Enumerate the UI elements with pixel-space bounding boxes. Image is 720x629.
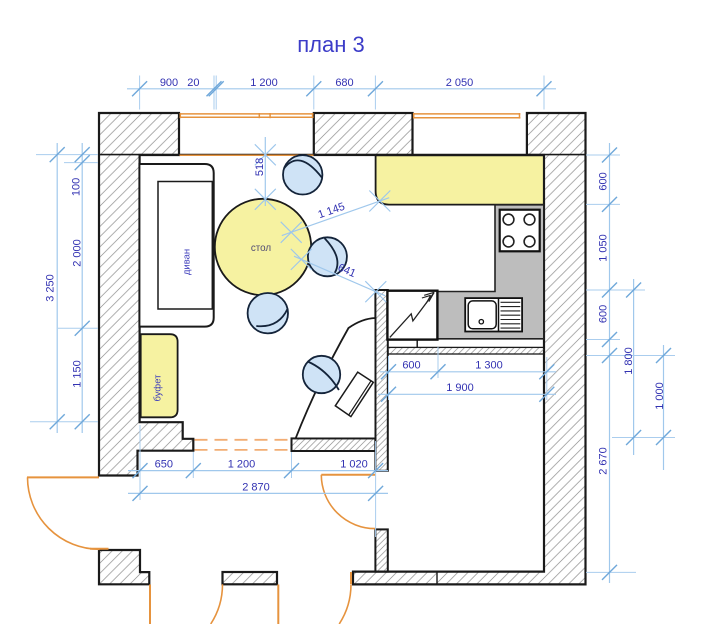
svg-text:600: 600 (402, 360, 420, 372)
svg-text:1 000: 1 000 (654, 382, 666, 410)
svg-text:план 3: план 3 (297, 32, 364, 57)
svg-text:1 300: 1 300 (475, 360, 503, 372)
svg-text:900: 900 (160, 77, 178, 89)
svg-text:2 670: 2 670 (598, 447, 610, 475)
svg-text:1 050: 1 050 (598, 234, 610, 262)
svg-text:буфет: буфет (153, 374, 164, 402)
svg-text:1 900: 1 900 (446, 382, 474, 394)
svg-text:20: 20 (187, 77, 199, 89)
svg-text:стол: стол (251, 243, 272, 254)
svg-text:1 800: 1 800 (623, 347, 635, 375)
svg-text:1 200: 1 200 (228, 459, 256, 471)
svg-text:1 200: 1 200 (250, 77, 278, 89)
svg-text:518: 518 (254, 158, 266, 176)
svg-text:3 250: 3 250 (45, 274, 57, 302)
svg-text:650: 650 (155, 459, 173, 471)
svg-text:680: 680 (335, 77, 353, 89)
svg-text:1 020: 1 020 (340, 459, 368, 471)
svg-text:2 050: 2 050 (446, 77, 474, 89)
svg-text:1 150: 1 150 (72, 360, 84, 388)
svg-text:диван: диван (182, 249, 193, 275)
svg-text:2 870: 2 870 (242, 481, 270, 493)
svg-text:2 000: 2 000 (72, 239, 84, 267)
svg-text:600: 600 (598, 305, 610, 323)
svg-text:600: 600 (598, 172, 610, 190)
svg-text:100: 100 (71, 178, 83, 196)
